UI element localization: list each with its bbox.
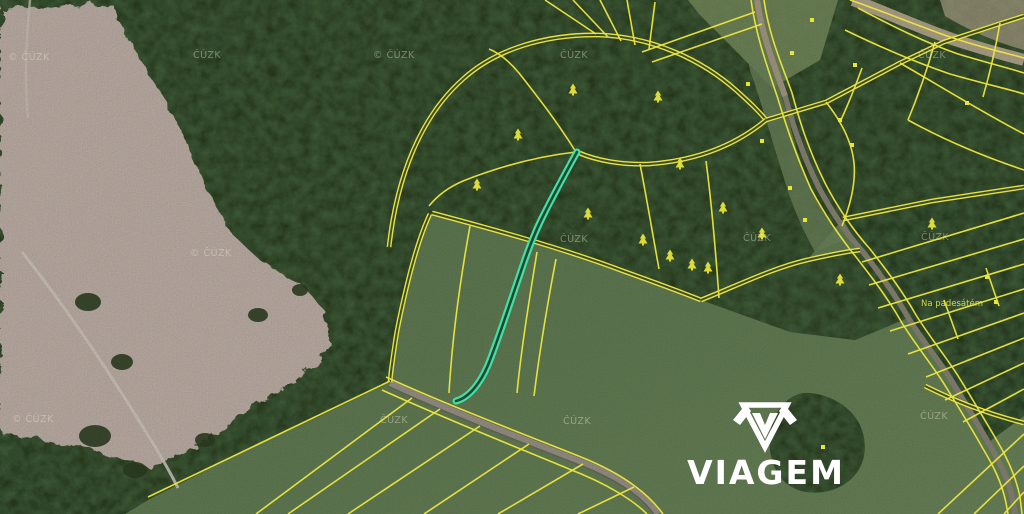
cuzk-watermark: ČÚZK: [918, 49, 946, 61]
cuzk-watermark: ČÚZK: [921, 231, 949, 243]
cuzk-watermark: © ČÚZK: [12, 413, 54, 425]
place-name-label: Na padesátém: [921, 298, 983, 309]
parcel-use-marker: [838, 118, 842, 122]
parcel-use-marker: [850, 143, 854, 147]
map-screenshot: © ČÚZKČÚZK© ČÚZKČÚZKČÚZK© ČÚZKČÚZKČÚZKČÚ…: [0, 0, 1024, 514]
parcel-use-marker: [760, 139, 764, 143]
satellite-map-canvas: © ČÚZKČÚZK© ČÚZKČÚZKČÚZK© ČÚZKČÚZKČÚZKČÚ…: [0, 0, 1024, 514]
cuzk-watermark: © ČÚZK: [190, 247, 232, 259]
parcel-use-marker: [985, 275, 989, 279]
cuzk-watermark: ČÚZK: [193, 49, 221, 61]
cuzk-watermark: ČÚZK: [743, 232, 771, 244]
parcel-use-marker: [790, 51, 794, 55]
parcel-use-marker: [994, 300, 998, 304]
cuzk-watermark: © ČÚZK: [373, 49, 415, 61]
parcel-use-marker: [746, 82, 750, 86]
parcel-use-marker: [803, 218, 807, 222]
cuzk-watermark: ČÚZK: [563, 415, 591, 427]
cuzk-watermark: ČÚZK: [560, 49, 588, 61]
cuzk-watermark: © ČÚZK: [8, 51, 50, 63]
parcel-use-marker: [788, 186, 792, 190]
viagem-logo-text: VIAGEM: [687, 453, 845, 492]
cuzk-watermark: ČÚZK: [920, 410, 948, 422]
parcel-use-marker: [821, 445, 825, 449]
cuzk-watermark: ČÚZK: [380, 414, 408, 426]
parcel-use-marker: [965, 101, 969, 105]
parcel-use-marker: [853, 63, 857, 67]
parcel-use-marker: [810, 18, 814, 22]
cuzk-watermark: ČÚZK: [560, 233, 588, 245]
